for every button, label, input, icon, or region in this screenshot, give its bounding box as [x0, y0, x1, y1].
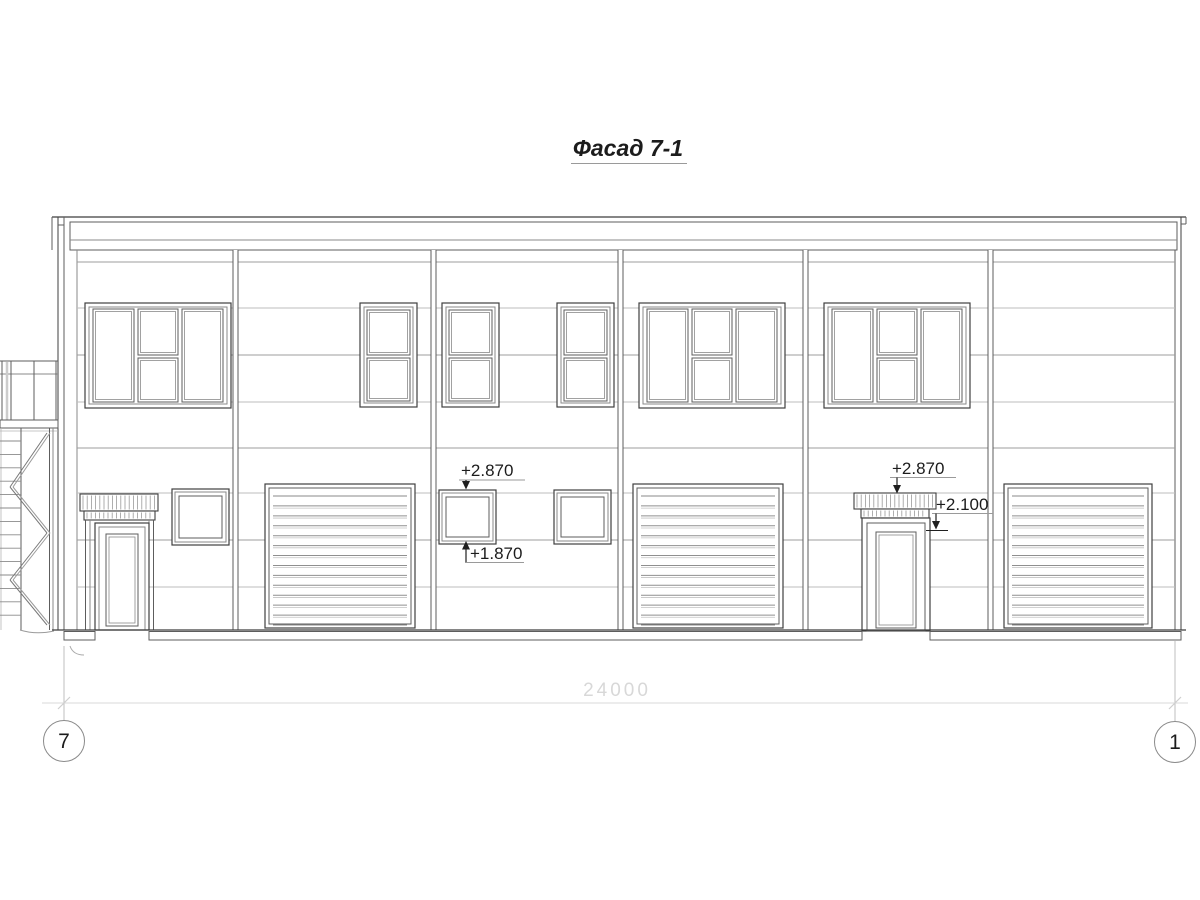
- elevation-mark-door-head: +2.100: [936, 495, 988, 514]
- window-pane: [367, 358, 410, 401]
- arrow-down: [932, 521, 940, 530]
- window-pane: [93, 309, 134, 402]
- column-fill: [233, 250, 238, 630]
- plinth: [149, 632, 862, 641]
- small-window-frame: [439, 490, 496, 544]
- column-fill: [618, 250, 623, 630]
- overall-dimension-label: 24000: [583, 680, 651, 701]
- window-pane: [564, 358, 607, 401]
- cross-brace: [10, 533, 47, 580]
- window-pane: [692, 309, 732, 355]
- facade-drawing-sheet: Фасад 7-1 +2.870 +1.870 +2.870 +2.100 24…: [0, 0, 1200, 900]
- windows: [85, 303, 970, 545]
- cross-brace: [13, 487, 50, 533]
- window-pane: [921, 309, 962, 402]
- arrow-down: [462, 481, 470, 490]
- window-pane: [367, 310, 410, 355]
- cross-brace: [10, 487, 47, 533]
- grid-axis-right-label: 1: [1169, 731, 1181, 754]
- window-pane: [647, 309, 688, 402]
- ground-plinth: [52, 630, 1186, 640]
- plinth: [64, 632, 95, 641]
- arrow-down: [893, 485, 901, 494]
- cross-brace: [13, 580, 50, 625]
- plinth: [930, 632, 1181, 641]
- small-window-frame: [172, 489, 229, 545]
- window-pane: [692, 358, 732, 402]
- window-pane: [877, 309, 917, 355]
- cross-brace: [10, 580, 47, 625]
- column-fill: [988, 250, 993, 630]
- elevation-mark-canopy-top: +2.870: [892, 459, 944, 478]
- window-pane: [138, 309, 178, 355]
- cross-brace: [13, 533, 50, 580]
- landing-platform: [0, 420, 58, 428]
- elevation-drawing: Фасад 7-1 +2.870 +1.870 +2.870 +2.100 24…: [0, 0, 1200, 900]
- door-frame: [95, 523, 149, 630]
- column-fill: [431, 250, 436, 630]
- window-pane: [736, 309, 777, 402]
- column-fill: [803, 250, 808, 630]
- window-pane: [138, 358, 178, 402]
- sectional-gates: [265, 484, 1152, 628]
- window-pane: [832, 309, 873, 402]
- window-pane: [182, 309, 223, 402]
- elevation-mark-window-sill: +1.870: [470, 544, 522, 563]
- elevation-mark-window-head: +2.870: [461, 461, 513, 480]
- dimension-layer: [42, 641, 1196, 763]
- small-window-frame: [554, 490, 611, 544]
- window-pane: [449, 310, 492, 355]
- fascia-band: [70, 222, 1177, 250]
- external-stair: [0, 361, 84, 655]
- drawing-title: Фасад 7-1: [573, 135, 683, 161]
- window-pane: [877, 358, 917, 402]
- window-pane: [449, 358, 492, 401]
- grid-axis-left-label: 7: [58, 730, 70, 753]
- ground-curve: [70, 646, 84, 655]
- ground-curve: [20, 630, 54, 633]
- window-pane: [564, 310, 607, 355]
- door-canopy-band: [84, 511, 155, 520]
